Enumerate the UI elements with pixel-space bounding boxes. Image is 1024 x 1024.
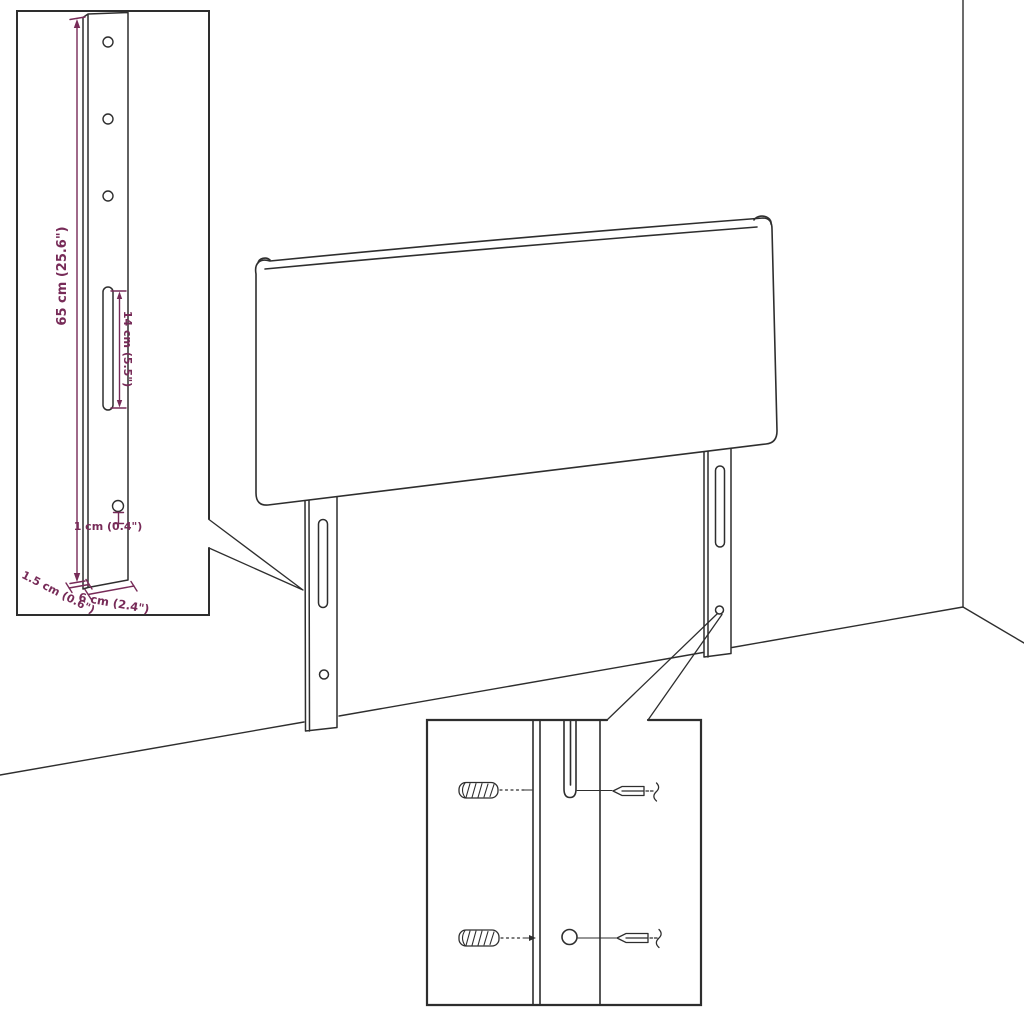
arrow-65-top (74, 19, 80, 28)
screw-icon-top (613, 783, 659, 801)
headboard (256, 216, 777, 505)
headboard-leg-right (704, 449, 731, 658)
leg-left-slot (319, 520, 328, 608)
leg-left-outline (305, 497, 337, 731)
leg-closeup-hole (562, 930, 577, 945)
headboard-panel (256, 218, 777, 505)
diagram-linework (0, 0, 1024, 1024)
bracket-hole-3 (103, 191, 113, 201)
floor-line-right (963, 607, 1024, 643)
bracket-holes (103, 37, 124, 512)
wall-plug-icon-top (459, 783, 498, 799)
bracket-inset-callout-lines (209, 520, 303, 591)
dimension-label-height: 65 cm (25.6") (55, 216, 71, 336)
wall-plug-icon-bottom (459, 930, 499, 946)
leg-right-slot (716, 466, 725, 547)
dimension-arrowheads (74, 19, 122, 582)
leg-right-hole (716, 606, 724, 614)
bracket-hole-1 (103, 37, 113, 47)
leg-closeup-slot (564, 720, 576, 798)
arrow-14-bottom (117, 400, 122, 408)
bracket-slot (103, 287, 113, 410)
hardware-inset (427, 614, 722, 1005)
headboard-leg-left (305, 497, 337, 731)
floor-line-left (0, 607, 963, 775)
bracket-bar (83, 13, 128, 590)
leg-closeup-strip (533, 720, 600, 1005)
dimension-label-hole-diameter: 1 cm (0.4") (58, 519, 158, 535)
leg-left-hole (320, 670, 329, 679)
bracket-hole-bottom (113, 501, 124, 512)
bracket-hole-2 (103, 114, 113, 124)
dimension-label-slot-length: 14 cm (5.5") (119, 304, 135, 394)
product-diagram: 65 cm (25.6") 14 cm (5.5") 1 cm (0.4") 1… (0, 0, 1024, 1024)
arrow-65-bottom (74, 573, 80, 582)
leg-right-outline (704, 449, 731, 658)
screw-icon-bottom (617, 930, 661, 948)
arrow-14-top (117, 292, 122, 300)
